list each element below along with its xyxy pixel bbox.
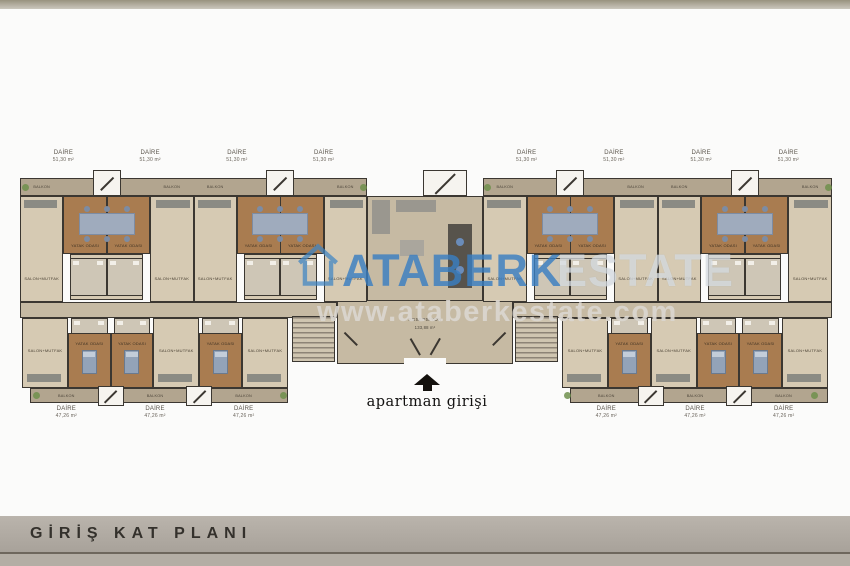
unit-label-bottom-area: 47,26 m²: [564, 413, 648, 419]
chair-icon: [84, 236, 90, 242]
balcony-label: BALKON: [768, 184, 850, 190]
bedroom-label: YATAK ODASI: [587, 341, 671, 347]
unit-label-top-name: DAİRE: [21, 150, 105, 156]
living-room-label: SALON+MUTFAK: [543, 348, 627, 354]
unit-label-top-area: 51,30 m²: [108, 157, 192, 163]
unit-label-bottom-name: DAİRE: [202, 406, 286, 412]
unit-label-top-name: DAİRE: [195, 150, 279, 156]
sink-icon: [711, 261, 717, 265]
title-bar: GİRİŞ KAT PLANI: [0, 516, 850, 554]
unit-label-top-name: DAİRE: [746, 150, 830, 156]
desk-icon: [620, 200, 654, 208]
sink-icon: [110, 261, 116, 265]
corridor-left: [20, 302, 337, 318]
reception-label: RESEPSİYON: [383, 318, 467, 324]
chair-icon: [124, 236, 130, 242]
unit-label-bottom-name: DAİRE: [653, 406, 737, 412]
table-icon: [252, 213, 308, 235]
balcony-label: BALKON: [173, 184, 257, 190]
toilet-icon: [229, 321, 235, 325]
bedroom-label: YATAK ODASI: [725, 243, 809, 249]
toilet-icon: [597, 261, 603, 265]
desk-icon: [156, 200, 189, 208]
unit-label-top-name: DAİRE: [108, 150, 192, 156]
table-icon: [79, 213, 135, 235]
desk-icon: [247, 374, 281, 382]
sink-icon: [205, 321, 211, 325]
floor-plan-page: YATAK ODASIYATAK ODASISALON+MUTFAKSALON+…: [0, 0, 850, 566]
staircase: [515, 316, 558, 362]
sink-icon: [74, 321, 80, 325]
unit-label-bottom-name: DAİRE: [564, 406, 648, 412]
living-room: [483, 196, 527, 302]
desk-icon: [158, 374, 192, 382]
chair-icon: [742, 206, 748, 212]
sink-icon: [117, 321, 123, 325]
unit-label-bottom-name: DAİRE: [742, 406, 826, 412]
unit-label-bottom-area: 47,26 m²: [24, 413, 108, 419]
toilet-icon: [98, 321, 104, 325]
table-icon: [542, 213, 598, 235]
chair-icon: [722, 206, 728, 212]
chair-icon: [104, 236, 110, 242]
unit-label-bottom-area: 47,26 m²: [113, 413, 197, 419]
living-room-label: SALON+MUTFAK: [3, 348, 87, 354]
sink-icon: [247, 261, 253, 265]
entrance-arrow-icon: [414, 374, 440, 391]
unit-label-top-name: DAİRE: [572, 150, 656, 156]
unit-label-top-area: 51,30 m²: [282, 157, 366, 163]
living-room: [150, 196, 193, 302]
desk-icon: [24, 200, 57, 208]
balcony-label: BALKON: [463, 184, 547, 190]
toilet-icon: [270, 261, 276, 265]
living-room-label: SALON+MUTFAK: [223, 348, 307, 354]
staircase: [292, 316, 335, 362]
unit-label-bottom-area: 47,26 m²: [653, 413, 737, 419]
balcony-label: BALKON: [637, 184, 721, 190]
unit-label-top-area: 51,30 m²: [572, 157, 656, 163]
living-room: [194, 196, 237, 302]
balcony-label: BALKON: [303, 184, 387, 190]
balcony-label: BALKON: [742, 393, 826, 399]
sink-icon: [573, 261, 579, 265]
unit-label-bottom-name: DAİRE: [24, 406, 108, 412]
coffee-table-icon: [400, 240, 424, 256]
unit-label-top-area: 51,30 m²: [746, 157, 830, 163]
balcony-label: BALKON: [0, 184, 84, 190]
living-room: [788, 196, 832, 302]
unit-label-top-area: 51,30 m²: [195, 157, 279, 163]
living-room-label: SALON+MUTFAK: [303, 276, 387, 282]
unit-label-top-area: 51,30 m²: [659, 157, 743, 163]
unit-label-top-name: DAİRE: [282, 150, 366, 156]
toilet-icon: [307, 261, 313, 265]
living-room-label: SALON+MUTFAK: [632, 348, 716, 354]
bedroom-label: YATAK ODASI: [179, 341, 263, 347]
arrow-head: [414, 374, 440, 385]
unit-label-top-name: DAİRE: [485, 150, 569, 156]
sink-icon: [537, 261, 543, 265]
living-room-label: SALON+MUTFAK: [134, 348, 218, 354]
living-room-label: SALON+MUTFAK: [173, 276, 257, 282]
entrance-label-text: apartman girişi: [347, 394, 507, 410]
reception-area-label: 133,88 m²: [383, 325, 467, 331]
living-room: [324, 196, 367, 302]
chair-icon: [124, 206, 130, 212]
sink-icon: [745, 321, 751, 325]
reception-chair-icon: [456, 238, 464, 246]
desk-icon: [487, 200, 521, 208]
sink-icon: [614, 321, 620, 325]
desk-icon: [794, 200, 828, 208]
unit-label-top-area: 51,30 m²: [485, 157, 569, 163]
balcony-label: BALKON: [202, 393, 286, 399]
toilet-icon: [638, 321, 644, 325]
toilet-icon: [560, 261, 566, 265]
bedroom-label: YATAK ODASI: [550, 243, 634, 249]
sink-icon: [703, 321, 709, 325]
living-room: [614, 196, 658, 302]
chair-icon: [762, 236, 768, 242]
chair-icon: [722, 236, 728, 242]
sink-icon: [748, 261, 754, 265]
living-room: [20, 196, 63, 302]
desk-icon: [567, 374, 601, 382]
chair-icon: [84, 206, 90, 212]
unit-label-top-name: DAİRE: [659, 150, 743, 156]
toilet-icon: [97, 261, 103, 265]
bedroom-label: YATAK ODASI: [90, 341, 174, 347]
balcony-label: BALKON: [564, 393, 648, 399]
living-room-label: SALON+MUTFAK: [463, 276, 547, 282]
sofa-icon: [372, 200, 390, 234]
toilet-icon: [771, 261, 777, 265]
living-room-label: SALON+MUTFAK: [768, 276, 850, 282]
balcony-label: BALKON: [24, 393, 108, 399]
unit-label-bottom-area: 47,26 m²: [742, 413, 826, 419]
table-icon: [717, 213, 773, 235]
chair-icon: [104, 206, 110, 212]
entrance-caption: apartman girişi: [347, 374, 507, 410]
living-room-label: SALON+MUTFAK: [0, 276, 84, 282]
floor-plan-canvas: YATAK ODASIYATAK ODASISALON+MUTFAKSALON+…: [0, 0, 850, 516]
toilet-icon: [735, 261, 741, 265]
toilet-icon: [726, 321, 732, 325]
sofa-icon: [396, 200, 436, 212]
living-room: [658, 196, 702, 302]
toilet-icon: [769, 321, 775, 325]
corridor-right: [513, 302, 832, 318]
unit-label-bottom-area: 47,26 m²: [202, 413, 286, 419]
bottom-border-strip: [0, 554, 850, 566]
desk-icon: [656, 374, 690, 382]
unit-label-top-area: 51,30 m²: [21, 157, 105, 163]
balcony-label: BALKON: [653, 393, 737, 399]
chair-icon: [762, 206, 768, 212]
toilet-icon: [140, 321, 146, 325]
desk-icon: [662, 200, 696, 208]
desk-icon: [787, 374, 821, 382]
balcony-label: BALKON: [113, 393, 197, 399]
toilet-icon: [133, 261, 139, 265]
reception-lower: [337, 300, 513, 364]
unit-label-bottom-name: DAİRE: [113, 406, 197, 412]
bedroom-label: YATAK ODASI: [260, 243, 344, 249]
desk-icon: [27, 374, 61, 382]
entrance-opening: [404, 358, 446, 366]
sink-icon: [73, 261, 79, 265]
plan-title: GİRİŞ KAT PLANI: [0, 516, 850, 552]
sink-icon: [283, 261, 289, 265]
desk-icon: [330, 200, 363, 208]
desk-icon: [198, 200, 231, 208]
arrow-stem: [423, 385, 432, 391]
bedroom-label: YATAK ODASI: [719, 341, 803, 347]
bedroom-label: YATAK ODASI: [86, 243, 170, 249]
chair-icon: [742, 236, 748, 242]
reception-chair-icon: [456, 266, 464, 274]
living-room-label: SALON+MUTFAK: [637, 276, 721, 282]
living-room-label: SALON+MUTFAK: [763, 348, 847, 354]
